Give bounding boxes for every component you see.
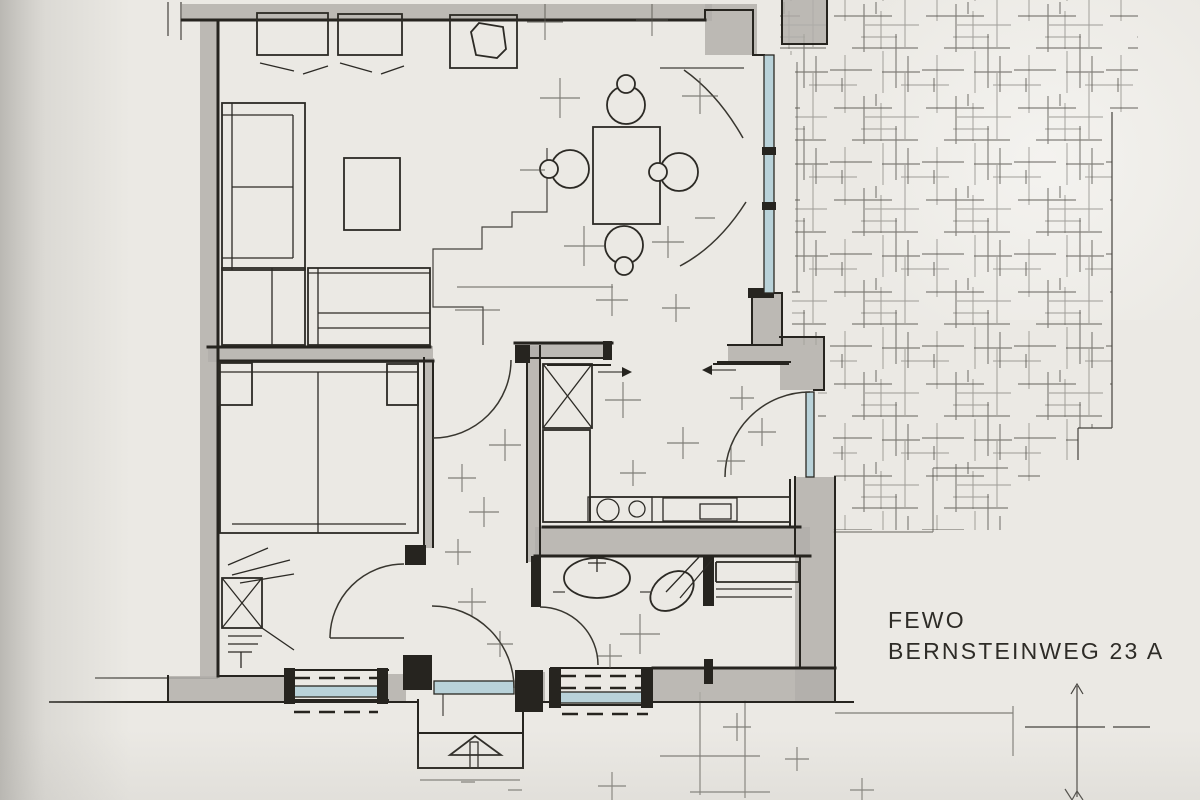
terrace-door-glazing xyxy=(806,392,814,477)
floor-plan-drawing: FEWO BERNSTEINWEG 23 A xyxy=(0,0,1200,800)
bottom-edge-shadow xyxy=(0,730,1200,800)
scanned-floor-plan-page: FEWO BERNSTEINWEG 23 A xyxy=(0,0,1200,800)
plan-title-line-2: BERNSTEINWEG 23 A xyxy=(888,638,1164,664)
entrance-door-glazing xyxy=(434,681,514,694)
dining-glass-door-glazing xyxy=(762,55,776,293)
plan-title-line-1: FEWO xyxy=(888,607,966,633)
left-edge-shadow xyxy=(0,0,130,800)
